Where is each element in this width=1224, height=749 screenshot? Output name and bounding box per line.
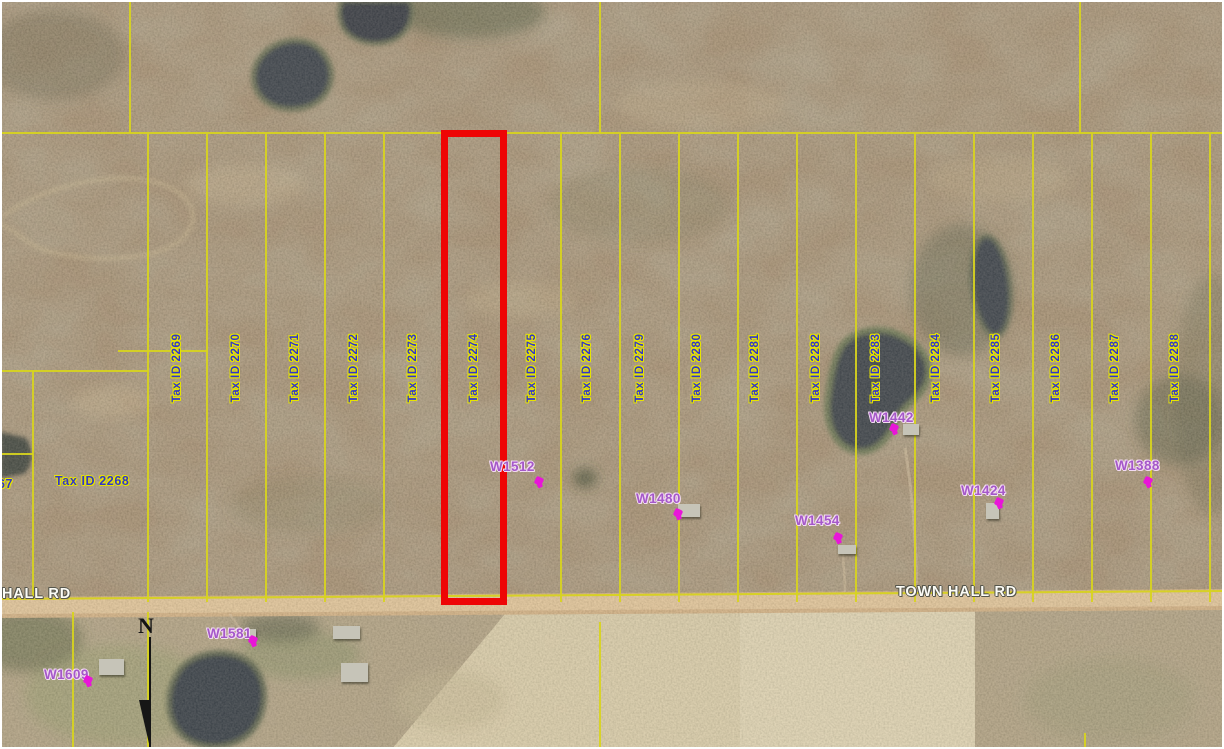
highlighted-parcel-outline <box>441 130 507 605</box>
map-canvas: Tax ID 2269Tax ID 2270Tax ID 2271Tax ID … <box>0 0 1224 749</box>
north-arrow-fletch-icon <box>139 700 150 748</box>
parcel-label-partial: 67 <box>0 477 13 491</box>
north-arrow-letter: N <box>138 613 154 639</box>
north-arrow: N <box>134 613 164 749</box>
aerial-photo-background <box>0 0 1224 749</box>
parcel-label-2268: Tax ID 2268 <box>55 474 129 488</box>
